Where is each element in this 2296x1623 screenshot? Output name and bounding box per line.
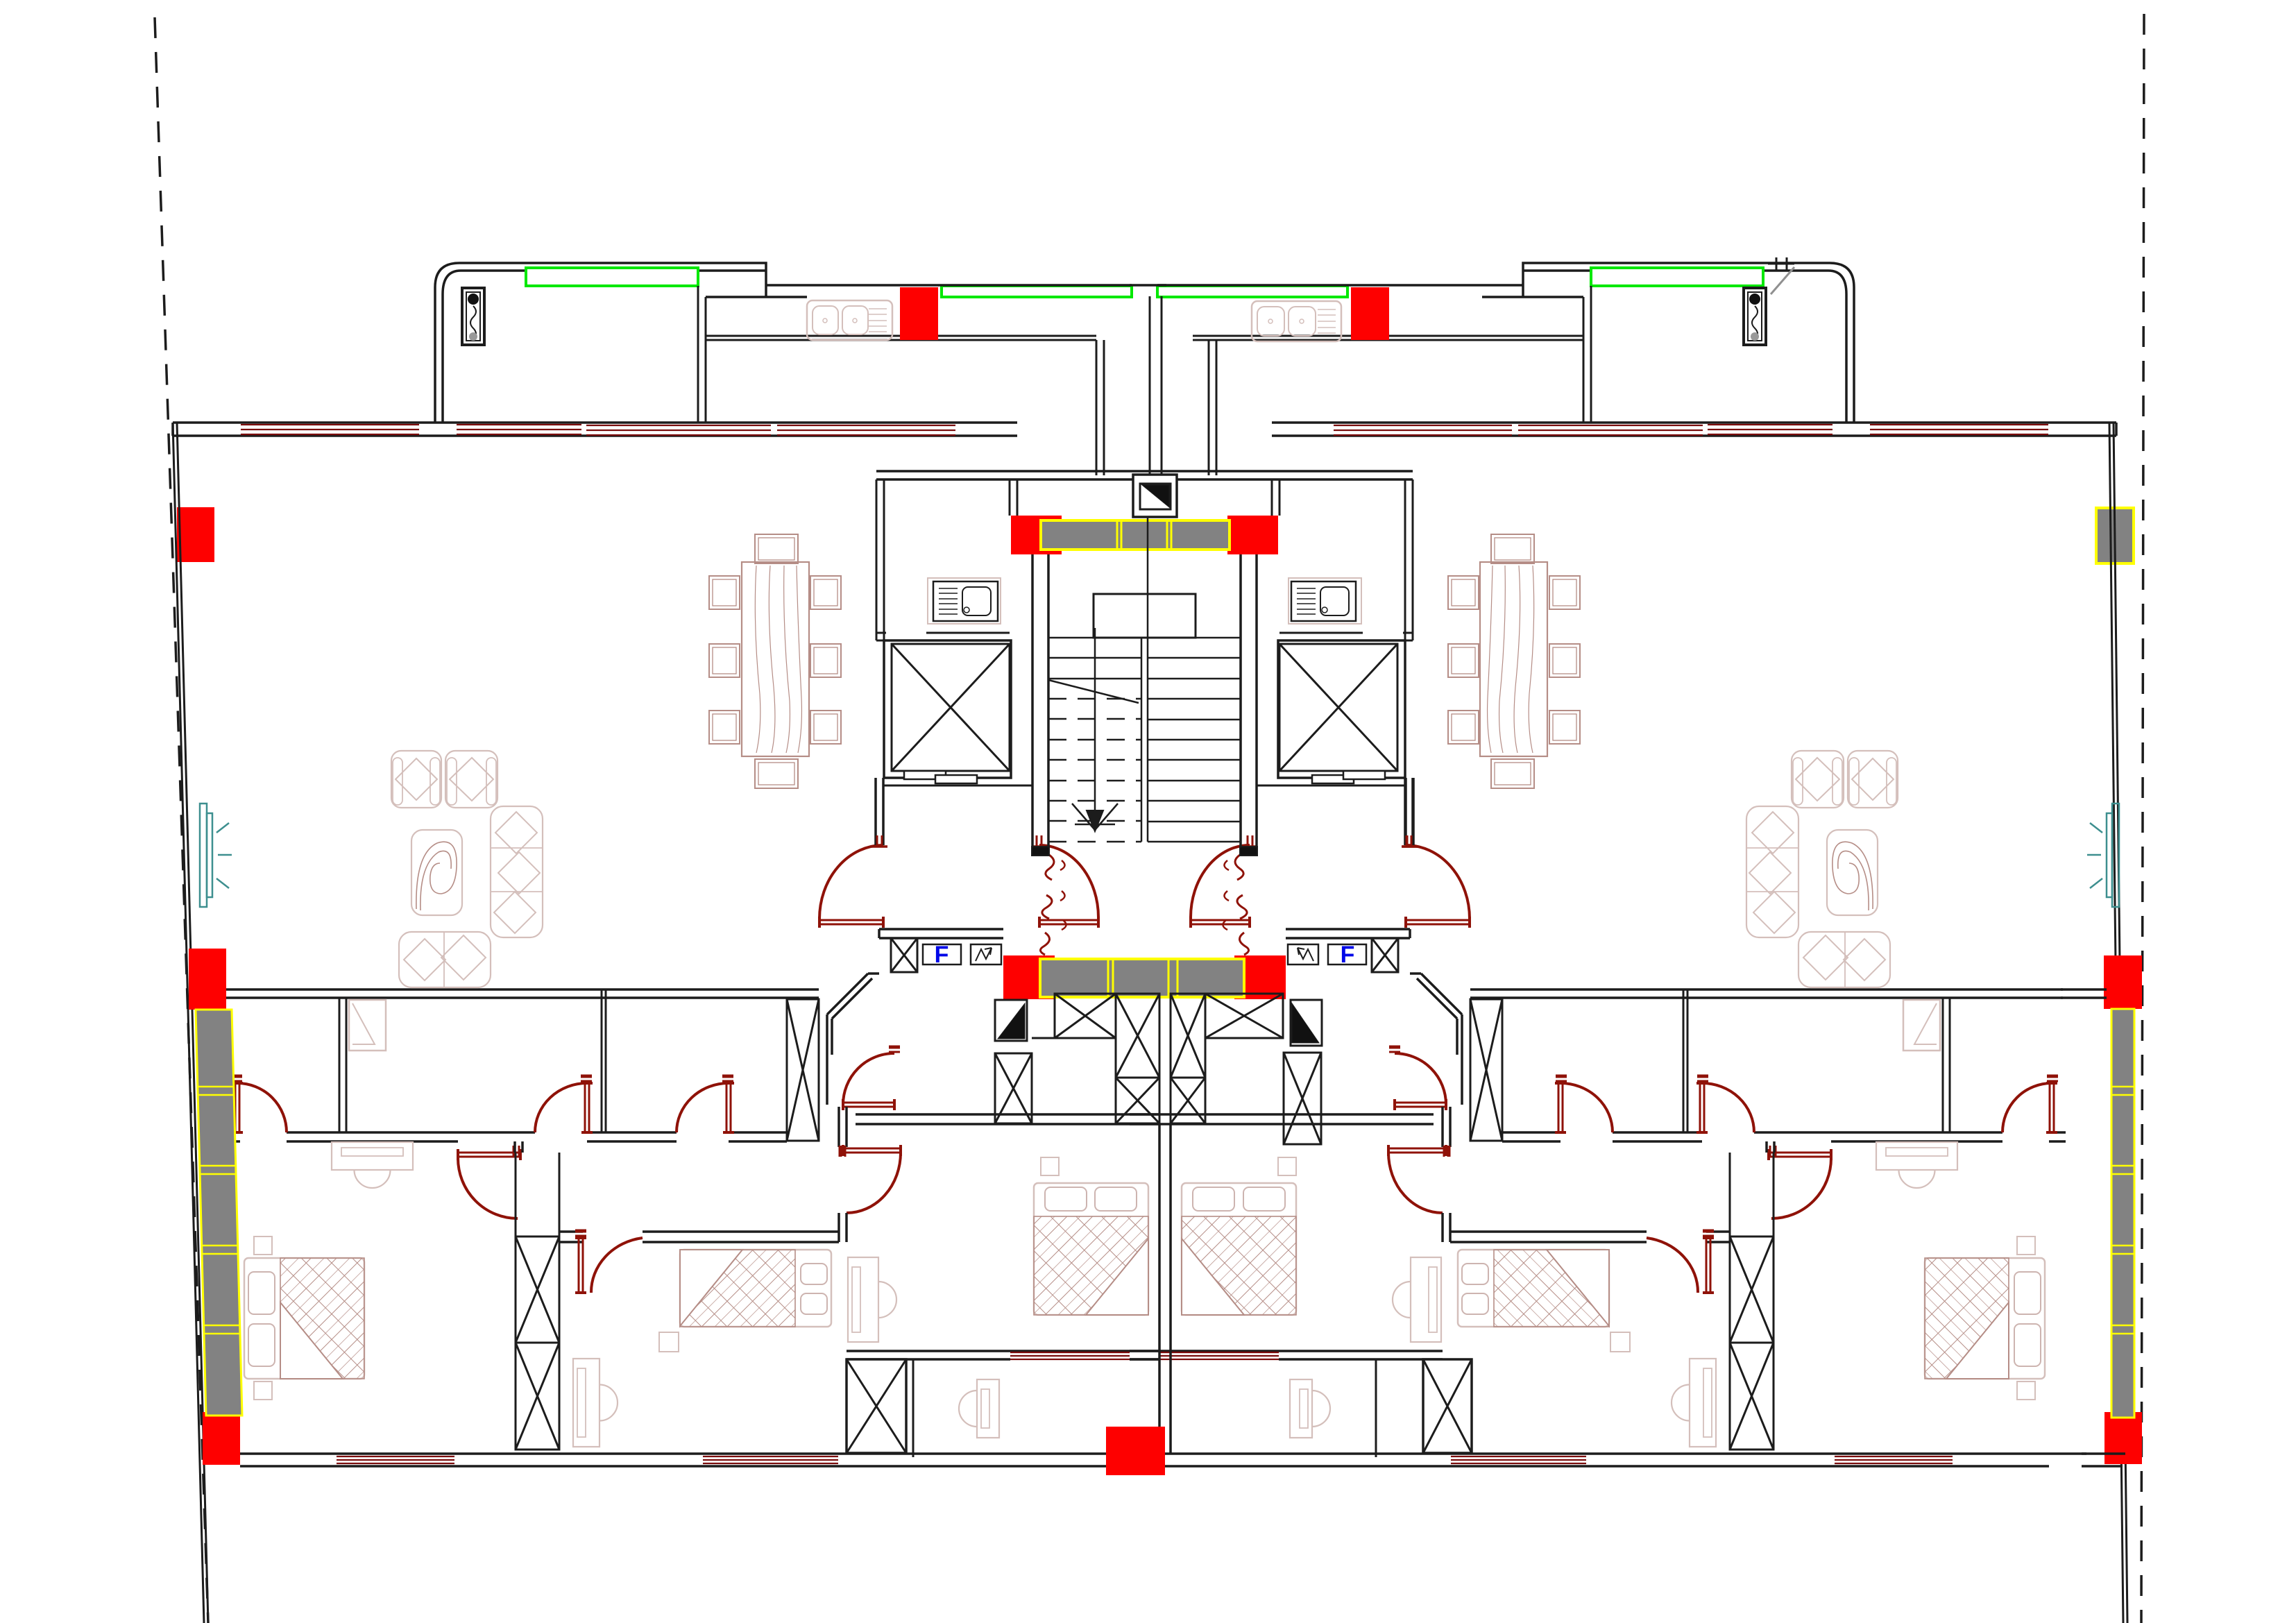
- svg-text:F: F: [935, 942, 949, 968]
- svg-text:F: F: [1341, 942, 1355, 968]
